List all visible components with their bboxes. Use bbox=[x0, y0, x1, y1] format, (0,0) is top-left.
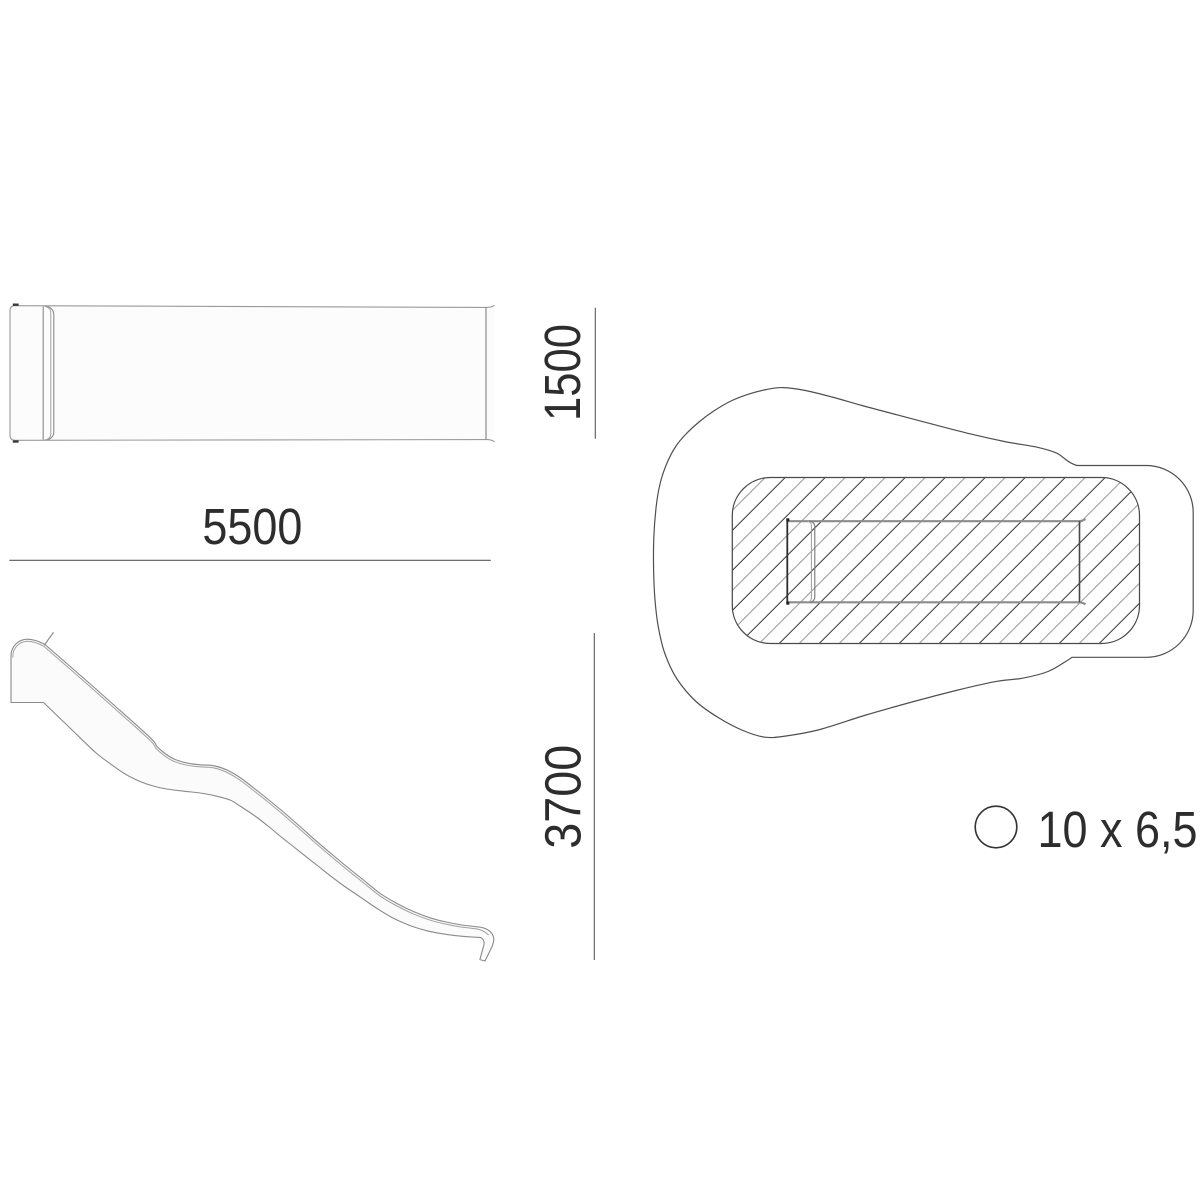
svg-text:1500: 1500 bbox=[534, 324, 591, 421]
svg-text:3700: 3700 bbox=[535, 745, 592, 849]
svg-text:10 x 6,5: 10 x 6,5 bbox=[1038, 801, 1198, 858]
svg-text:5500: 5500 bbox=[202, 498, 302, 555]
